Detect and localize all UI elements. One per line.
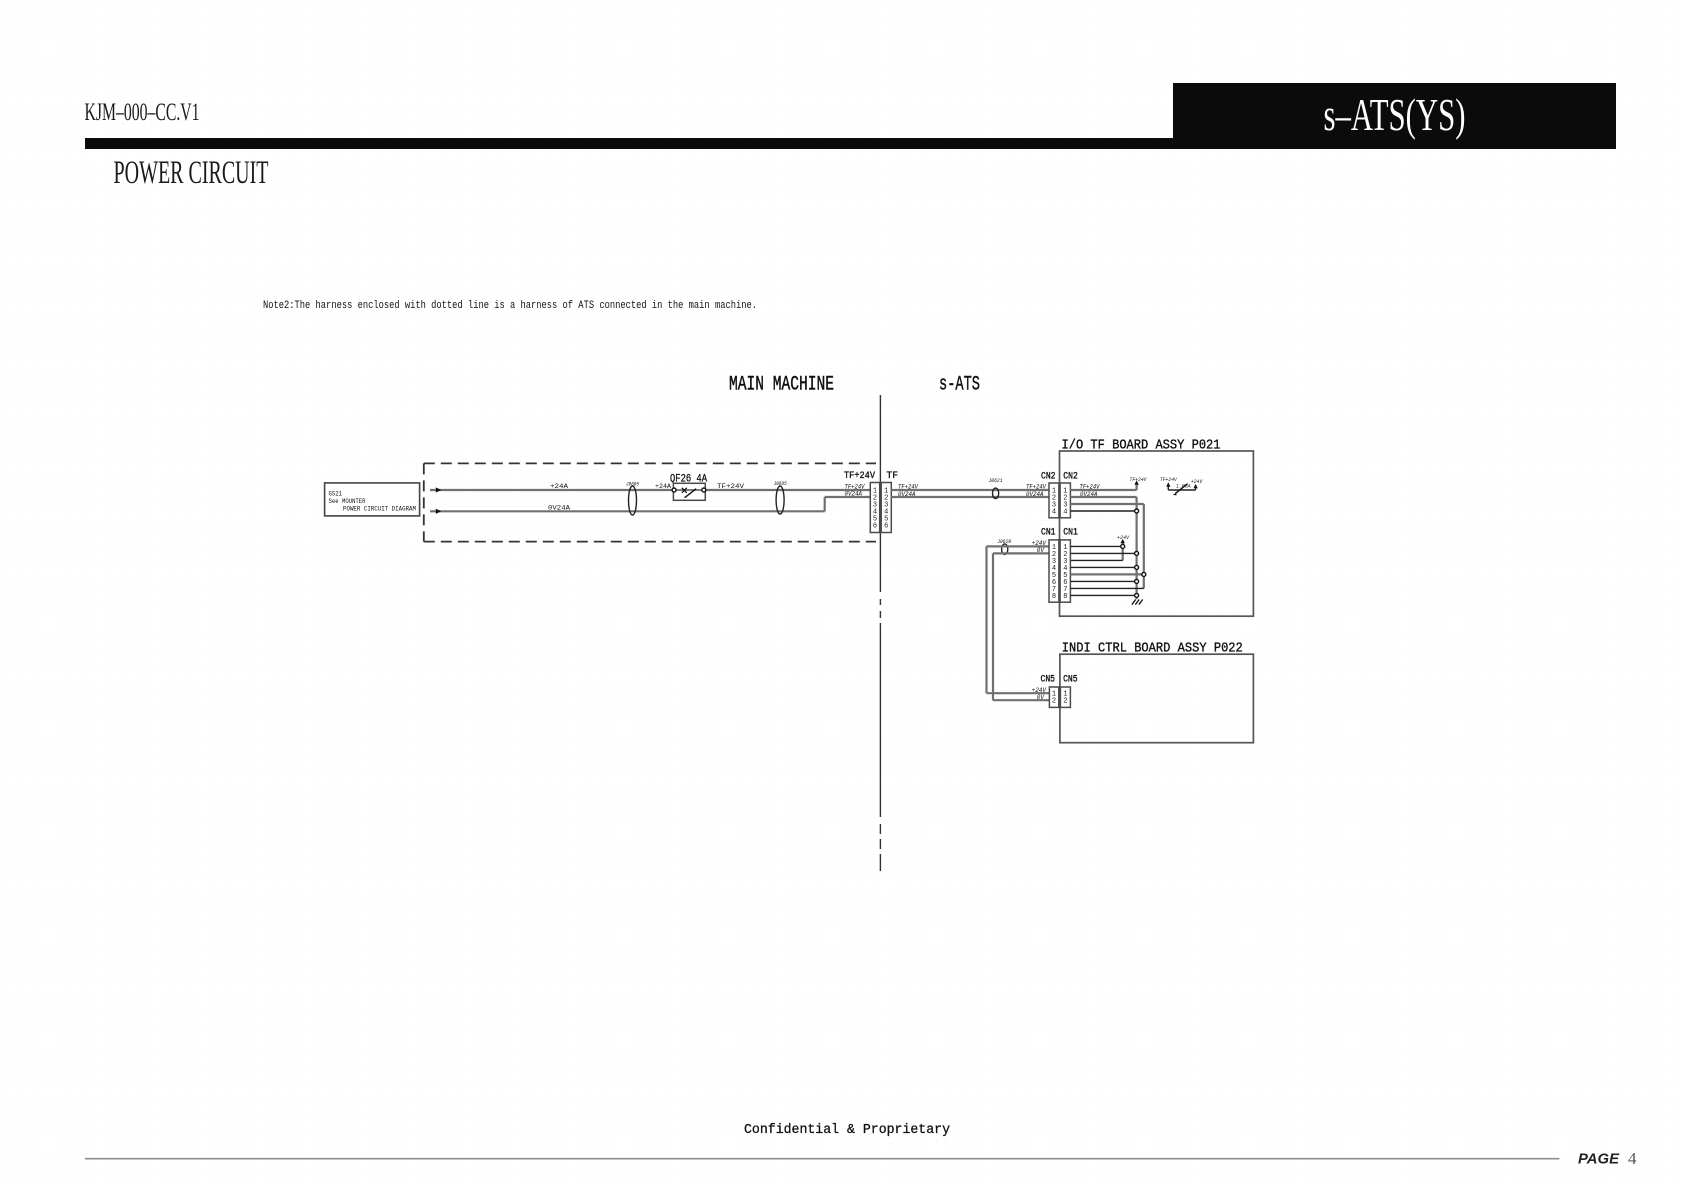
svg-text:TF+24V: TF+24V [845,484,866,491]
svg-text:+24V: +24V [1032,687,1048,694]
svg-text:+24V: +24V [1117,534,1130,541]
svg-text:TF+24V: TF+24V [1130,476,1148,483]
svg-text:TF+24V: TF+24V [898,484,919,491]
svg-text:+24A: +24A [655,483,671,490]
svg-text:0V24A: 0V24A [845,491,863,498]
svg-text:J0620: J0620 [997,538,1012,545]
svg-text:6: 6 [873,522,877,530]
svg-text:8: 8 [1063,593,1067,601]
svg-text:TF+24V: TF+24V [1026,484,1047,491]
svg-text:TF+24V: TF+24V [717,483,744,490]
svg-text:TF+24V: TF+24V [844,470,876,482]
svg-text:0V24A: 0V24A [1026,491,1044,498]
svg-text:I/O TF BOARD ASSY P021: I/O TF BOARD ASSY P021 [1062,439,1221,454]
svg-text:J0685: J0685 [774,480,788,487]
svg-text:+24V: +24V [1191,478,1203,485]
svg-text:4: 4 [1052,508,1056,516]
svg-text:MAIN MACHINE: MAIN MACHINE [729,374,834,397]
svg-text:+24V: +24V [1032,540,1048,547]
svg-text:8: 8 [1052,593,1056,601]
svg-text:INDI CTRL BOARD ASSY P022: INDI CTRL BOARD ASSY P022 [1062,642,1243,657]
svg-text:PAGE: PAGE [1578,1152,1620,1168]
svg-text:TF: TF [887,470,899,482]
svg-text:POWER CIRCUIT DIAGRAM: POWER CIRCUIT DIAGRAM [343,505,416,513]
svg-text:TF+24V: TF+24V [1160,476,1178,483]
svg-text:4: 4 [1063,508,1067,516]
svg-text:CN5: CN5 [1041,674,1056,686]
svg-text:6: 6 [884,522,888,530]
svg-text:CN2: CN2 [1063,470,1078,482]
svg-text:J0621: J0621 [989,477,1003,484]
svg-text:2: 2 [1063,698,1067,706]
svg-text:CN1: CN1 [1063,526,1078,538]
svg-text:Confidential & Proprietary: Confidential & Proprietary [744,1122,950,1138]
svg-text:2: 2 [1052,698,1056,706]
svg-text:s-ATS: s-ATS [939,374,980,397]
svg-text:1.85A: 1.85A [1176,483,1191,490]
svg-text:Note2:The harness enclosed wit: Note2:The harness enclosed with dotted l… [263,300,757,312]
svg-text:CN5: CN5 [1063,674,1078,686]
svg-text:0V24A: 0V24A [548,504,570,511]
svg-text:CN1: CN1 [1041,526,1056,538]
svg-text:s–ATS(YS): s–ATS(YS) [1324,89,1466,140]
svg-text:J0695: J0695 [626,481,640,488]
svg-text:+24A: +24A [550,483,568,490]
svg-text:KJM–000–CC.V1: KJM–000–CC.V1 [85,99,200,126]
svg-text:0V24A: 0V24A [898,491,916,498]
svg-text:CN2: CN2 [1041,470,1056,482]
svg-text:POWER CIRCUIT: POWER CIRCUIT [114,155,269,191]
svg-text:4: 4 [1628,1149,1637,1168]
